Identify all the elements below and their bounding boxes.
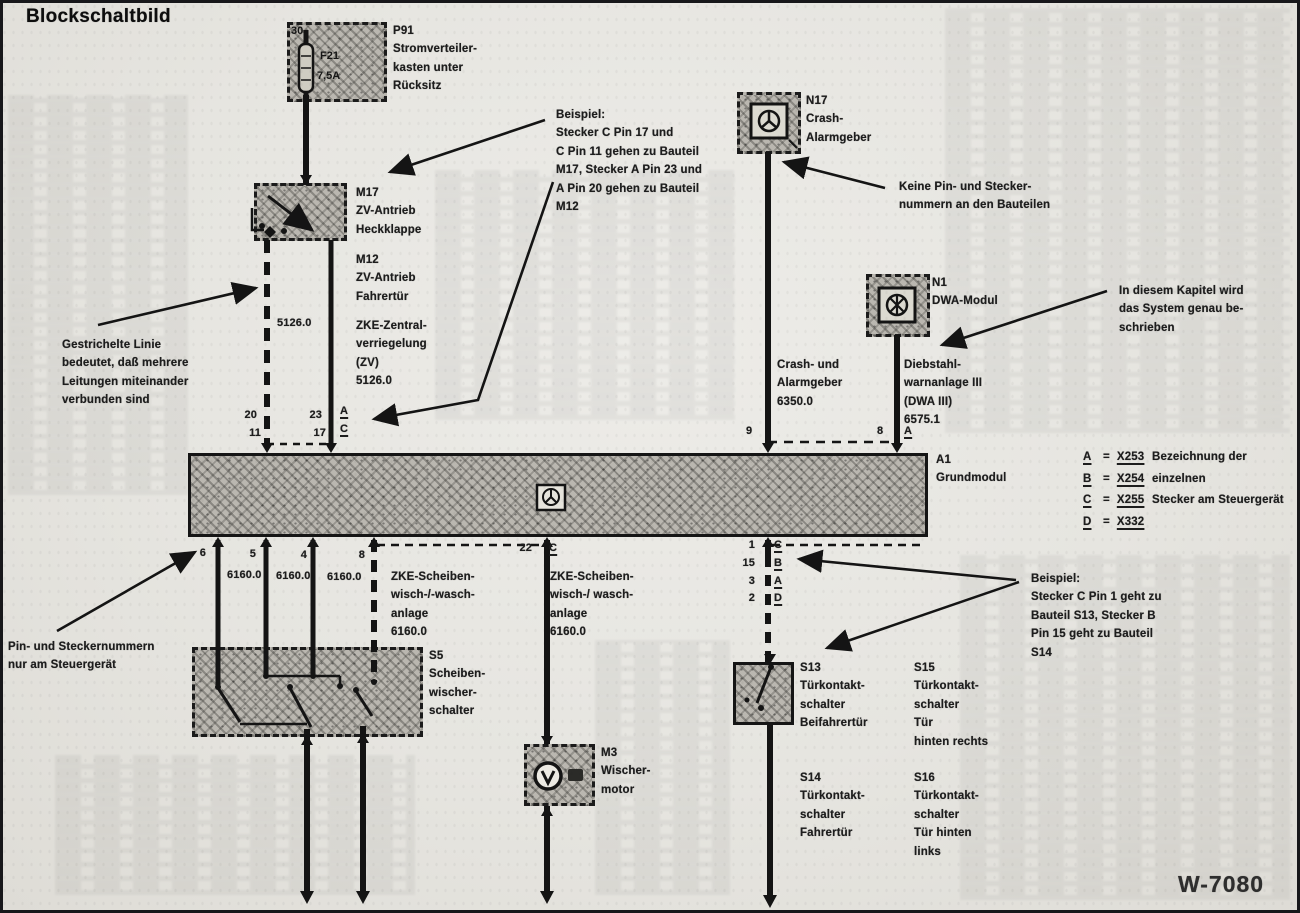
component-box-s5-wiper-switch bbox=[192, 647, 423, 737]
s13-label: S13Türkontakt- schalter Beifahrertür bbox=[800, 659, 868, 733]
doc-number: W-7080 bbox=[1178, 866, 1264, 903]
no-pin-numbers-note: Keine Pin- und Stecker- nummern an den B… bbox=[899, 178, 1050, 215]
page-title: Blockschaltbild bbox=[26, 2, 171, 32]
dwa-circuit-label: Diebstahl- warnanlage III (DWA III) 6575… bbox=[904, 356, 982, 430]
p91-desc: Stromverteiler- kasten unter Rücksitz bbox=[393, 40, 477, 95]
p91-fuse-rating: 7,5A bbox=[317, 70, 340, 82]
component-box-a1-base-module bbox=[188, 453, 928, 537]
m3-label: M3Wischer- motor bbox=[601, 744, 651, 799]
component-box-m17-lock-actuator bbox=[254, 183, 347, 241]
right-connector-letters: CB AD bbox=[774, 537, 782, 608]
wire-number-6160-3: 6160.0 bbox=[327, 569, 362, 587]
paper-bleedthrough-texture bbox=[945, 8, 1290, 433]
component-box-n1-dwa-module bbox=[866, 274, 930, 337]
legend-note: Bezeichnung der einzelnen Stecker am Ste… bbox=[1152, 447, 1300, 512]
s16-label: S16Türkontakt- schalter Tür hinten links bbox=[914, 769, 979, 861]
wire-number-5126: 5126.0 bbox=[277, 315, 312, 333]
m17-label: M17ZV-Antrieb Heckklappe bbox=[356, 184, 421, 239]
dashed-line-note: Gestrichelte Linie bedeutet, daß mehrere… bbox=[62, 336, 189, 410]
pin-22: 22 bbox=[510, 540, 532, 558]
pin-8-bottom: 8 bbox=[351, 547, 365, 565]
component-box-s13-door-switch bbox=[733, 662, 794, 725]
scanned-wiring-diagram-page: Blockschaltbild W-7080 30 F21 7,5A P91 S… bbox=[0, 0, 1300, 913]
right-pin-numbers: 115 32 bbox=[733, 537, 755, 608]
pin-23: 23 bbox=[304, 407, 322, 425]
connector-letters-ac: AC bbox=[340, 403, 348, 439]
p91-label: P91 Stromverteiler- kasten unter Rücksit… bbox=[393, 22, 477, 96]
pin-20: 20 bbox=[239, 407, 257, 425]
paper-bleedthrough-texture bbox=[8, 95, 188, 495]
pins-only-note: Pin- und Steckernummern nur am Steuerger… bbox=[8, 638, 155, 675]
wire-number-6160-1: 6160.0 bbox=[227, 567, 262, 585]
crash-circuit-label: Crash- und Alarmgeber 6350.0 bbox=[777, 356, 842, 411]
s5-label: S5Scheiben- wischer- schalter bbox=[429, 647, 485, 721]
zv-circuit-label: ZKE-Zentral- verriegelung (ZV) 5126.0 bbox=[356, 317, 427, 391]
wire-number-6160-2: 6160.0 bbox=[276, 568, 311, 586]
chapter-note: In diesem Kapitel wird das System genau … bbox=[1119, 282, 1244, 337]
pin-6: 6 bbox=[192, 545, 206, 563]
pin-8-right: 8 bbox=[877, 423, 883, 441]
p91-terminal-30: 30 bbox=[291, 25, 303, 37]
legend-row: C=X255 bbox=[1083, 490, 1144, 512]
n17-label: N17Crash- Alarmgeber bbox=[806, 92, 871, 147]
pin-5: 5 bbox=[242, 546, 256, 564]
p91-fuse-id: F21 bbox=[320, 50, 339, 62]
s14-label: S14Türkontakt- schalter Fahrertür bbox=[800, 769, 865, 843]
component-box-m3-wiper-motor bbox=[524, 744, 595, 806]
legend-row: A=X253 bbox=[1083, 447, 1144, 469]
pin-17: 17 bbox=[308, 425, 326, 443]
connector-legend: A=X253 B=X254 C=X255 D=X332 bbox=[1083, 447, 1144, 533]
p91-id: P91 bbox=[393, 22, 477, 40]
connector-letter-c-mid: C bbox=[549, 540, 557, 558]
legend-row: D=X332 bbox=[1083, 512, 1144, 534]
beispiel-top-note: Beispiel: Stecker C Pin 17 und C Pin 11 … bbox=[556, 106, 702, 216]
s15-label: S15Türkontakt- schalter Tür hinten recht… bbox=[914, 659, 988, 751]
component-box-n17-crash-alarm bbox=[737, 92, 801, 154]
wisch-left-circuit-label: ZKE-Scheiben- wisch-/-wasch- anlage 6160… bbox=[391, 568, 475, 642]
connector-letter-a-right: A bbox=[904, 423, 912, 441]
wisch-mid-circuit-label: ZKE-Scheiben- wisch-/ wasch- anlage 6160… bbox=[550, 568, 634, 642]
pin-4: 4 bbox=[293, 547, 307, 565]
pin-9: 9 bbox=[746, 423, 752, 441]
m12-label: M12ZV-Antrieb Fahrertür bbox=[356, 251, 416, 306]
paper-bleedthrough-texture bbox=[55, 755, 415, 895]
n1-label: N1DWA-Modul bbox=[932, 274, 998, 311]
beispiel-right-note: Beispiel: Stecker C Pin 1 geht zu Bautei… bbox=[1031, 570, 1162, 662]
a1-label: A1Grundmodul bbox=[936, 451, 1007, 488]
legend-row: B=X254 bbox=[1083, 469, 1144, 491]
pin-11: 11 bbox=[243, 425, 261, 443]
